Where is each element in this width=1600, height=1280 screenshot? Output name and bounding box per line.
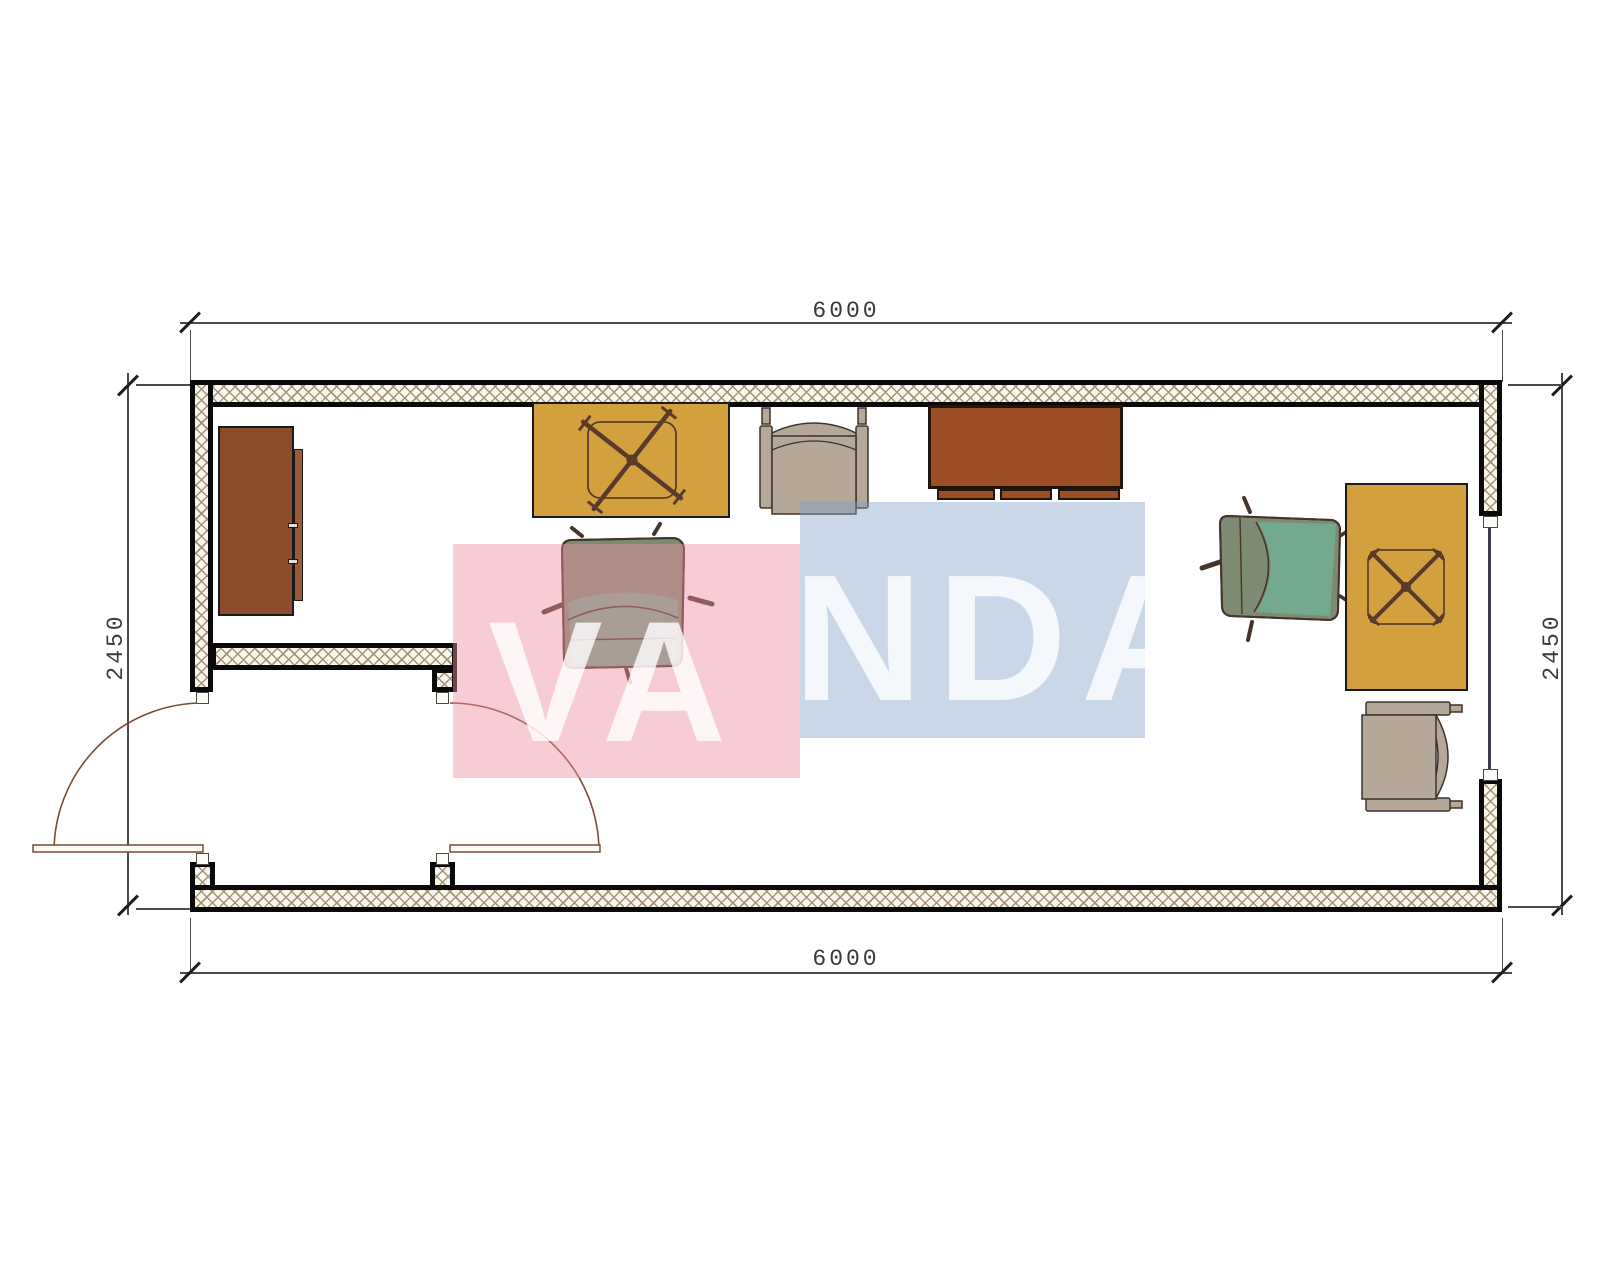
wall-top bbox=[190, 380, 1502, 407]
office-chair-left bbox=[538, 524, 718, 684]
floor-plan-canvas: 6000 6000 2450 2450 bbox=[0, 0, 1600, 1280]
wardrobe-cabinet bbox=[218, 426, 294, 616]
door-leaf-interior bbox=[450, 845, 600, 852]
desk-brown-foot bbox=[1058, 489, 1120, 500]
dim-ext-line bbox=[1508, 906, 1562, 908]
office-chair-right bbox=[1192, 492, 1350, 652]
cabinet-handle bbox=[288, 559, 298, 564]
desk-brown-foot bbox=[1000, 489, 1052, 500]
wall-left bbox=[190, 380, 213, 692]
door-leaf-exterior bbox=[33, 845, 203, 852]
dim-text-right: 2450 bbox=[1539, 582, 1565, 712]
watermark-blue-block bbox=[800, 502, 1145, 738]
door-jamb bbox=[436, 853, 449, 865]
dim-text-top: 6000 bbox=[781, 298, 911, 324]
armchair-right bbox=[1344, 698, 1466, 816]
desk-brown-foot bbox=[937, 489, 995, 500]
window-glass-line bbox=[1488, 527, 1491, 769]
door-swing-arcs bbox=[20, 690, 620, 860]
dim-ext-line bbox=[136, 384, 190, 386]
dim-ext-line bbox=[1502, 330, 1504, 382]
door-jamb bbox=[436, 692, 449, 704]
desk-brown-top bbox=[928, 405, 1123, 489]
door-jamb bbox=[196, 853, 209, 865]
dim-ext-line bbox=[136, 908, 190, 910]
dim-text-bottom: 6000 bbox=[781, 946, 911, 972]
wall-vestibule bbox=[211, 643, 457, 670]
wall-pier-bottom-right bbox=[430, 862, 455, 890]
chair-base-symbol-right bbox=[1350, 528, 1465, 646]
door-jamb bbox=[196, 692, 209, 704]
dim-ext-line bbox=[190, 918, 192, 970]
dim-ext-line bbox=[1508, 384, 1562, 386]
window-jamb bbox=[1483, 516, 1498, 528]
dim-ext-line bbox=[1502, 918, 1504, 970]
wall-right-upper bbox=[1479, 380, 1502, 516]
dim-ext-line bbox=[190, 330, 192, 382]
watermark-text-right: NDA bbox=[793, 549, 1225, 729]
wall-bottom bbox=[190, 885, 1502, 912]
armchair-top bbox=[758, 406, 870, 516]
wall-pier-bottom-left bbox=[190, 862, 215, 890]
window-jamb bbox=[1483, 769, 1498, 781]
cabinet-handle bbox=[288, 523, 298, 528]
dim-line-bottom bbox=[180, 972, 1512, 974]
wall-vestibule-pier bbox=[432, 668, 457, 692]
chair-base-symbol-left bbox=[542, 396, 722, 526]
